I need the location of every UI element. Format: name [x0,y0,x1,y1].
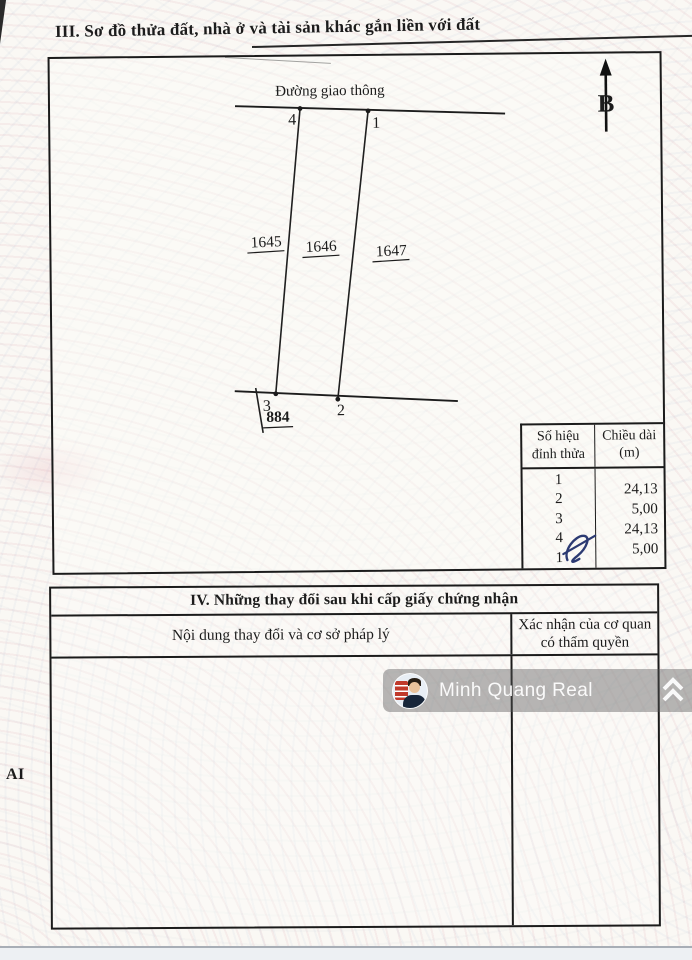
vertex-id: 2 [555,490,563,510]
vertex-label-4: 4 [288,112,296,129]
edge-length: 5,00 [632,499,658,519]
section4-header-row: Nội dung thay đổi và cơ sở pháp lý Xác n… [51,613,657,658]
scan-bottom-band [0,948,692,960]
parcel-id-1645: 1645 [250,233,282,251]
parcel-id-1647: 1647 [375,242,407,260]
double-chevron-up-icon [659,676,687,706]
dimension-col-length-header: Chiều dài (m) [595,424,663,466]
avatar-suit [403,695,426,709]
change-content-header: Nội dung thay đổi và cơ sở pháp lý [51,614,512,656]
vertex-dot-1 [366,108,371,113]
avatar-face [409,682,420,693]
section4-table: IV. Những thay đổi sau khi cấp giấy chứn… [49,583,661,929]
edge-length: 24,13 [624,479,658,499]
section4-title: IV. Những thay đổi sau khi cấp giấy chứn… [51,585,657,616]
vertex-label-1: 1 [372,115,380,132]
parcel-id-1646: 1646 [305,238,337,256]
document-page: III. Sơ đồ thửa đất, nhà ở và tài sản kh… [0,0,692,960]
parcel-right-boundary [335,111,371,399]
scan-edge-artifact [0,0,11,44]
vertex-label-2: 2 [337,402,345,419]
north-arrow-icon: B [597,59,614,132]
adjacent-parcel-id: 884 [266,409,290,426]
north-label: B [598,91,615,118]
margin-label: AI [6,766,25,784]
vertex-dot-3 [273,391,278,396]
adjacent-parcel-underline [263,427,293,428]
edge-length: 24,13 [624,519,658,539]
vertex-dot-2 [335,397,340,402]
vertex-id: 1 [555,471,563,491]
watermark-name: Minh Quang Real [439,680,659,702]
road-label: Đường giao thông [275,83,385,100]
edge-length: 5,00 [632,539,658,559]
pen-mark [559,526,605,570]
edge-length-column: 24,13 5,00 24,13 5,00 [596,468,665,568]
authority-confirm-header: Xác nhận của cơ quan có thẩm quyền [512,613,657,654]
plot-diagram-box: Đường giao thông 4 1 3 2 1645 1646 1647 [48,51,667,575]
dimension-table-header: Số hiệu đỉnh thửa Chiều dài (m) [522,424,663,469]
avatar [392,673,428,709]
vertex-dot-4 [298,106,303,111]
section3-title: III. Sơ đồ thửa đất, nhà ở và tài sản kh… [55,12,615,42]
length-header-line1: Chiều dài [602,428,656,445]
length-header-line2: (m) [619,445,639,462]
watermark: Minh Quang Real [383,669,692,712]
dimension-col-vertex-header: Số hiệu đỉnh thửa [522,425,595,467]
